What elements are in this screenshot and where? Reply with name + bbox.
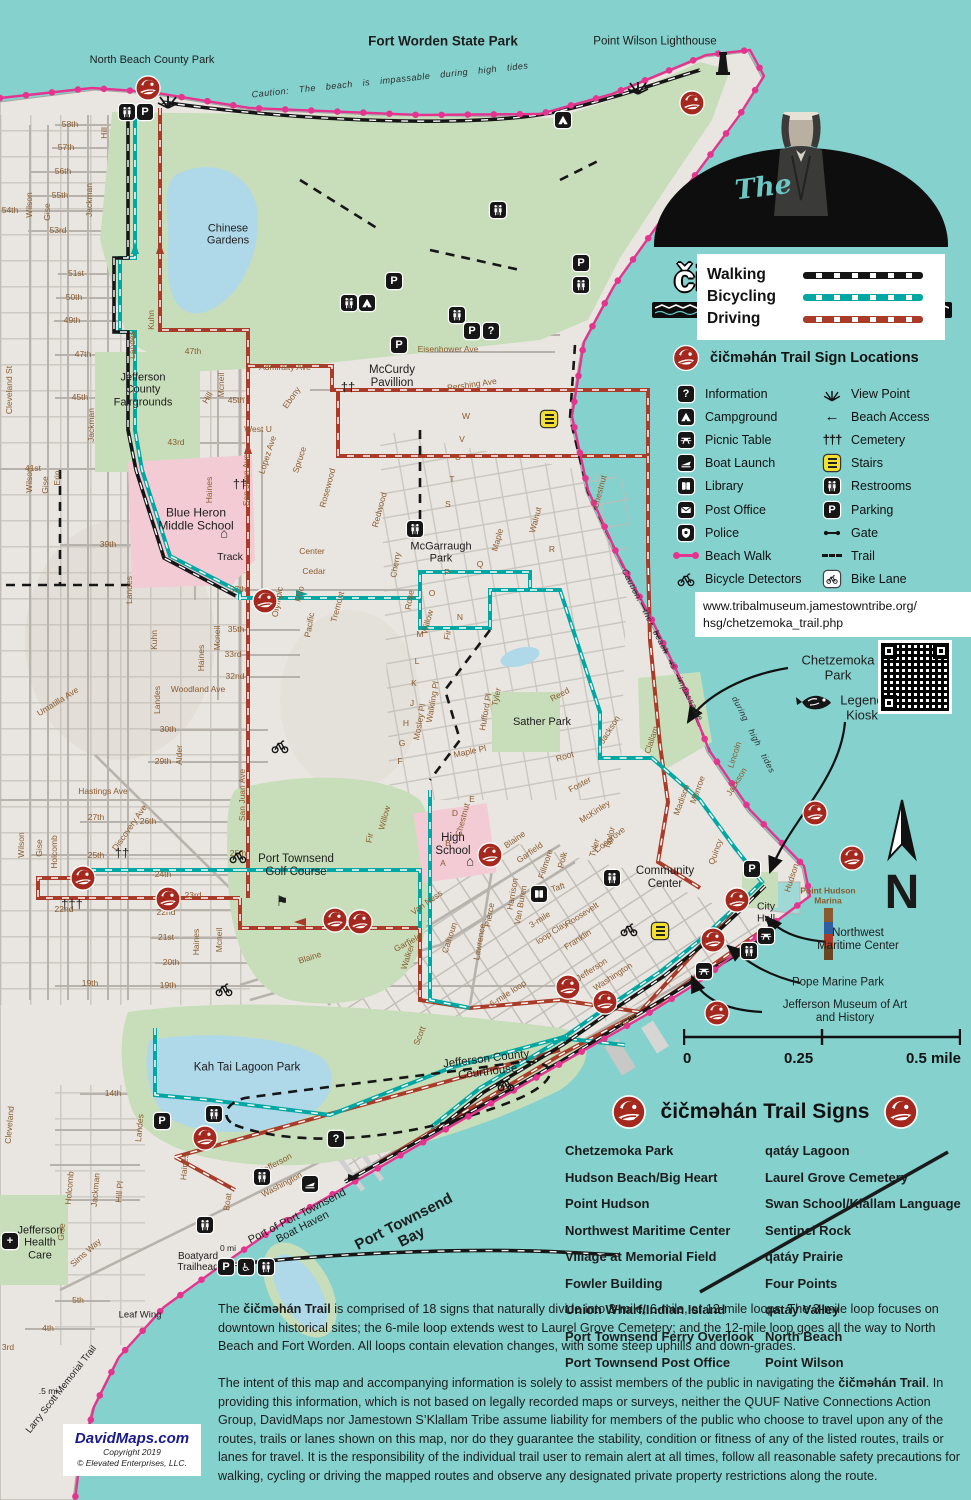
trail-sign-icon [611,1094,647,1130]
website-url[interactable]: www.tribalmuseum.jamestowntribe.org/ hsg… [695,592,971,637]
trail-sign-item: Sentinel Rock [765,1218,971,1245]
legend-item-view-point: View Point [822,382,962,405]
paragraph-loops: The čičməhán Trail is comprised of 18 si… [218,1300,966,1356]
route-legend-walking-label: Walking [707,266,793,284]
bikelane-icon [824,571,840,587]
legend-item-label: Boat Launch [705,456,775,470]
legend-item-label: View Point [851,387,910,401]
scale-quarter: 0.25 [784,1050,813,1067]
boat-icon [678,455,694,471]
parking-icon: P [824,502,840,518]
walking-line-swatch [803,272,923,279]
legend-item-label: Picnic Table [705,433,771,447]
paragraph-disclaimer: The intent of this map and accompanying … [218,1374,966,1486]
sign-legend-header: čičməhán Trail Sign Locations [672,344,919,372]
legend-item-picnic-table: Picnic Table [676,428,822,451]
legend-item-beach-access: ←Beach Access [822,405,962,428]
legend-item-label: Police [705,526,739,540]
post-icon [678,502,694,518]
trail-sign-item: Village at Memorial Field [565,1244,761,1271]
beachwalk-icon [676,554,696,557]
sign-legend-right-column: View Point←Beach Access†††CemeteryStairs… [822,382,962,591]
credit-copyright: Copyright 2019 [67,1447,197,1458]
legend-item-police: Police [676,521,822,544]
qr-code[interactable] [878,640,952,714]
cemetery-icon: ††† [823,433,842,446]
credit-company: © Elevated Enterprises, LLC. [67,1458,197,1469]
route-legend-walking: Walking [697,266,945,284]
map-description: The čičməhán Trail is comprised of 18 si… [218,1300,966,1500]
north-arrow: N [880,798,924,914]
scale-0: 0 [683,1050,691,1067]
trail-sign-item: Swan School/Klallam Language [765,1191,971,1218]
legend-item-campground: Campground [676,405,822,428]
scale-half: 0.5 mile [906,1050,961,1067]
route-legend-driving: Driving [697,310,945,328]
trail-sign-item: Hudson Beach/Big Heart [565,1165,761,1192]
trail-sign-icon [883,1094,919,1130]
trail-sign-item: Point Hudson [565,1191,761,1218]
trail-sign-item: Four Points [765,1271,971,1298]
legend-item-restrooms: Restrooms [822,475,962,498]
trail-sign-item: Chetzemoka Park [565,1138,761,1165]
legend-item-post-office: Post Office [676,498,822,521]
legend-item-beach-walk: Beach Walk [676,544,822,567]
sign-legend-title: čičməhán Trail Sign Locations [710,350,919,366]
totem-pole [824,908,833,960]
legend-item-label: Parking [851,503,893,517]
gate-icon [823,524,841,542]
legend-item-information: ?Information [676,382,822,405]
wc-icon [824,478,840,494]
rays-icon [823,385,841,403]
url-line-1[interactable]: www.tribalmuseum.jamestowntribe.org/ [703,598,971,615]
picnic-icon [678,432,694,448]
bicycling-line-swatch [803,294,923,301]
library-icon [678,478,694,494]
legend-item-library: Library [676,475,822,498]
credit-site[interactable]: DavidMaps.com [67,1430,197,1447]
driving-line-swatch [803,316,923,323]
trail-sign-item: qatáy Prairie [765,1244,971,1271]
legend-item-label: Bike Lane [851,572,907,586]
legend-item-cemetery: †††Cemetery [822,428,962,451]
trail-icon [822,554,842,557]
arrowleft-icon: ← [825,409,840,424]
route-legend: Walking Bicycling Driving [697,254,945,340]
route-legend-bicycling-label: Bicycling [707,288,793,306]
legend-item-bicycle-detectors: Bicycle Detectors [676,568,822,591]
legend-item-gate: Gate [822,521,962,544]
bike-icon [677,570,695,588]
legend-item-label: Information [705,387,768,401]
trail-sign-item: Fowler Building [565,1271,761,1298]
route-legend-driving-label: Driving [707,310,793,328]
legend-item-bike-lane: Bike Lane [822,568,962,591]
url-line-2[interactable]: hsg/chetzemoka_trail.php [703,615,971,632]
info-icon: ? [678,386,694,402]
trail-signs-title: čičməhán Trail Signs [661,1100,870,1124]
credit-box: DavidMaps.com Copyright 2019 © Elevated … [63,1424,201,1476]
legend-item-label: Campground [705,410,777,424]
camp-icon [678,409,694,425]
legend-item-label: Beach Walk [705,549,771,563]
police-icon [678,525,694,541]
trail-sign-item: qatáy Lagoon [765,1138,971,1165]
legend-item-label: Cemetery [851,433,905,447]
legend-item-label: Bicycle Detectors [705,572,802,586]
legend-item-label: Beach Access [851,410,930,424]
map-canvas: Fort Worden State ParkPoint Wilson Light… [0,0,971,1500]
north-arrow-icon [880,798,924,864]
legend-item-label: Restrooms [851,479,911,493]
legend-item-boat-launch: Boat Launch [676,452,822,475]
trail-sign-item: Laurel Grove Cemetery [765,1165,971,1192]
scale-bar: 0 0.25 0.5 mile [683,1028,961,1067]
legend-item-trail: Trail [822,544,962,567]
legend-item-parking: PParking [822,498,962,521]
legend-item-label: Stairs [851,456,883,470]
trail-sign-icon [672,344,700,372]
trail-signs-header: čičməhán Trail Signs [565,1094,965,1130]
route-legend-bicycling: Bicycling [697,288,945,306]
north-label: N [880,871,924,914]
legend-item-label: Trail [851,549,875,563]
legend-item-stairs: Stairs [822,452,962,475]
legend-item-label: Library [705,479,743,493]
sign-legend-left-column: ?InformationCampgroundPicnic TableBoat L… [676,382,822,591]
trail-sign-item: Northwest Maritime Center [565,1218,761,1245]
stairs-icon [824,455,840,471]
legend-item-label: Post Office [705,503,766,517]
legend-item-label: Gate [851,526,878,540]
